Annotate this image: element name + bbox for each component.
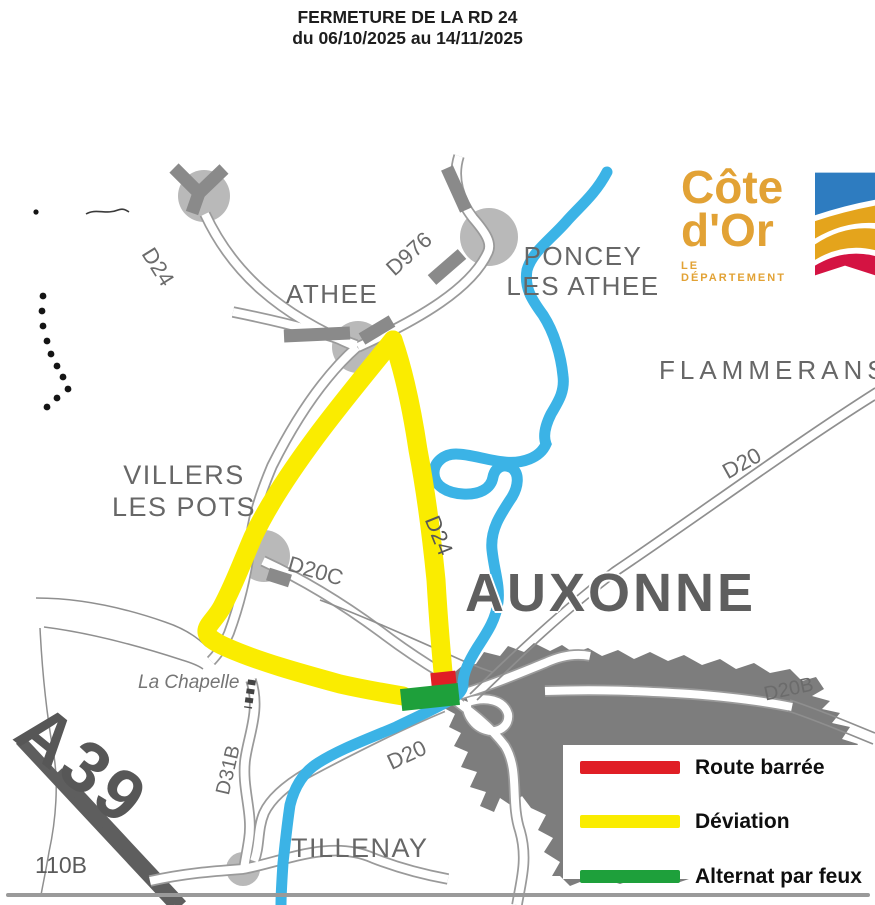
legend-row-route-barree: Route barrée <box>580 756 875 780</box>
label-auxonne: AUXONNE <box>465 562 756 624</box>
boundary-squiggle <box>86 209 129 214</box>
label-villers-line1: VILLERS <box>108 459 260 491</box>
route-barree-swatch-icon <box>580 761 680 775</box>
logo-subtitle: LE DÉPARTEMENT <box>681 260 805 284</box>
deviation-swatch-icon <box>580 815 680 829</box>
label-road-110b: 110B <box>35 852 87 879</box>
logo-line2: d'Or <box>681 209 805 252</box>
title-line2: du 06/10/2025 au 14/11/2025 <box>0 28 815 49</box>
legend-row-deviation: Déviation <box>580 810 875 834</box>
cote-dor-logo-text: Côte d'Or LE DÉPARTEMENT <box>681 166 805 284</box>
page-title: FERMETURE DE LA RD 24 du 06/10/2025 au 1… <box>0 7 815 49</box>
label-poncey-les-athee: PONCEY LES ATHEE <box>503 241 663 301</box>
legend: Route barrée Déviation Alternat par feux <box>563 745 875 879</box>
boundary-dots <box>33 209 71 410</box>
legend-label-alternat: Alternat par feux <box>695 865 862 889</box>
legend-label-route-barree: Route barrée <box>695 756 825 780</box>
legend-row-alternat: Alternat par feux <box>580 865 875 889</box>
legend-label-deviation: Déviation <box>695 810 790 834</box>
label-tillenay: TILLENAY <box>291 833 429 864</box>
deviation-route-east <box>393 340 443 672</box>
title-line1: FERMETURE DE LA RD 24 <box>0 7 815 28</box>
label-villers-line2: LES POTS <box>108 491 260 523</box>
label-flammerans: FLAMMERANS <box>659 355 875 386</box>
label-athee: ATHEE <box>286 279 378 310</box>
label-villers-les-pots: VILLERS LES POTS <box>108 459 260 523</box>
label-poncey-line1: PONCEY <box>503 241 663 271</box>
road-closure-notice: { "title": { "line1": "FERMETURE DE LA R… <box>0 0 875 905</box>
logo-line1: Côte <box>681 166 805 209</box>
alternat-swatch-icon <box>580 870 680 884</box>
cote-dor-logo: Côte d'Or LE DÉPARTEMENT <box>681 166 875 284</box>
cote-dor-flag-icon <box>815 171 875 277</box>
label-poncey-line2: LES ATHEE <box>503 271 663 301</box>
label-la-chapelle: La Chapelle <box>138 672 239 694</box>
